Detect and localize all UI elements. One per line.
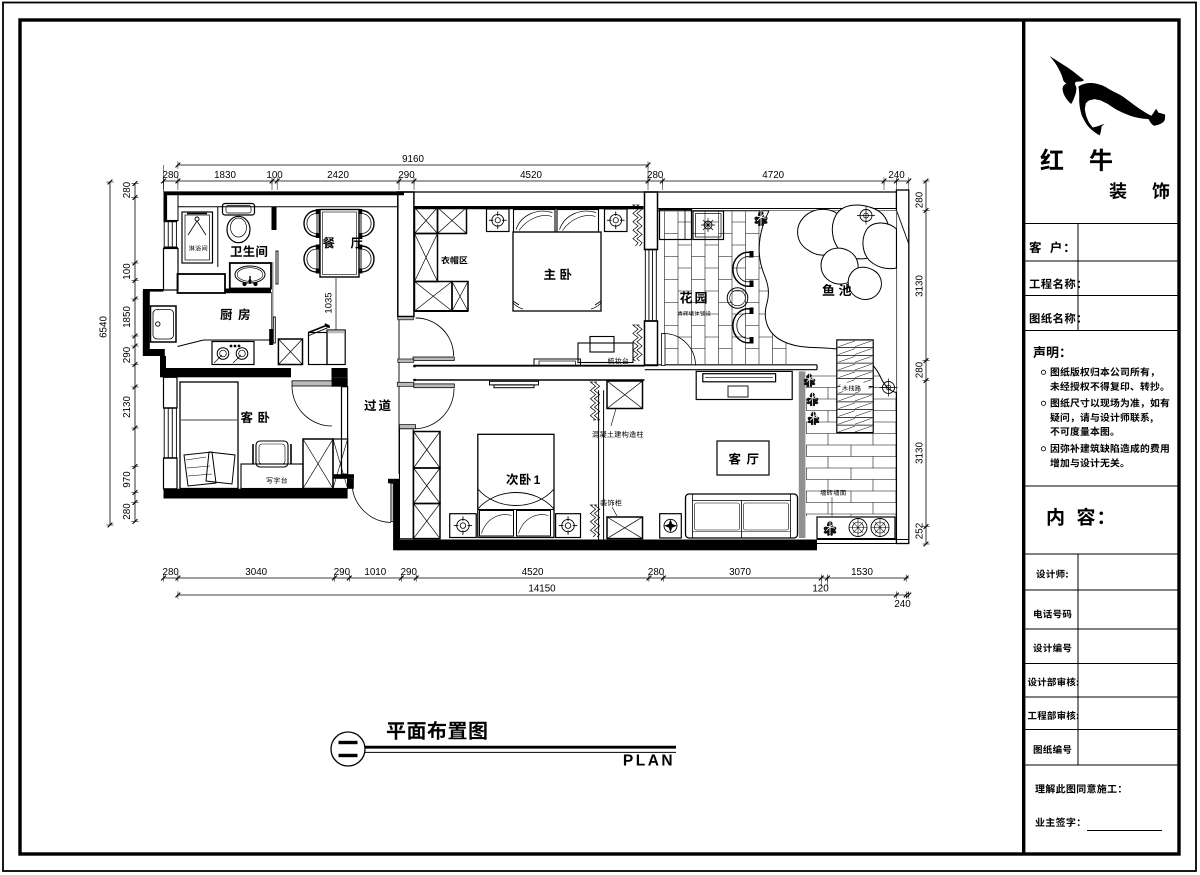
svg-text:290: 290 (122, 346, 133, 363)
svg-text:290: 290 (334, 567, 351, 578)
svg-text:3130: 3130 (915, 275, 926, 297)
svg-text:100: 100 (122, 263, 133, 280)
svg-text:4720: 4720 (762, 170, 784, 181)
svg-text:1010: 1010 (364, 567, 386, 578)
svg-text:240: 240 (888, 170, 905, 181)
svg-text:3070: 3070 (729, 567, 751, 578)
svg-text:1530: 1530 (851, 567, 873, 578)
svg-text:4520: 4520 (522, 567, 544, 578)
svg-text:240: 240 (894, 599, 911, 610)
svg-text:280: 280 (163, 170, 180, 181)
svg-text:280: 280 (647, 170, 664, 181)
svg-text:6540: 6540 (99, 316, 110, 338)
svg-text:280: 280 (122, 181, 133, 198)
svg-text:280: 280 (122, 503, 133, 520)
svg-text:290: 290 (401, 567, 418, 578)
svg-text:14150: 14150 (528, 584, 556, 595)
svg-text:280: 280 (915, 361, 926, 378)
svg-text:280: 280 (648, 567, 665, 578)
svg-text:PLAN: PLAN (623, 753, 675, 770)
svg-text:970: 970 (122, 471, 133, 488)
svg-text:290: 290 (398, 170, 415, 181)
svg-text:252: 252 (915, 523, 926, 539)
svg-text:100: 100 (266, 170, 283, 181)
svg-text:280: 280 (163, 567, 180, 578)
svg-text:120: 120 (812, 584, 829, 595)
svg-text:1: 1 (534, 473, 541, 487)
svg-text:1850: 1850 (122, 306, 133, 328)
svg-text:4520: 4520 (520, 170, 542, 181)
svg-text:1830: 1830 (214, 170, 236, 181)
svg-text:3130: 3130 (915, 442, 926, 464)
svg-text:3040: 3040 (245, 567, 267, 578)
svg-text:2130: 2130 (122, 396, 133, 418)
svg-text:280: 280 (915, 191, 926, 208)
svg-text:9160: 9160 (402, 154, 424, 165)
svg-text:1035: 1035 (324, 292, 335, 313)
svg-text:2420: 2420 (327, 170, 349, 181)
